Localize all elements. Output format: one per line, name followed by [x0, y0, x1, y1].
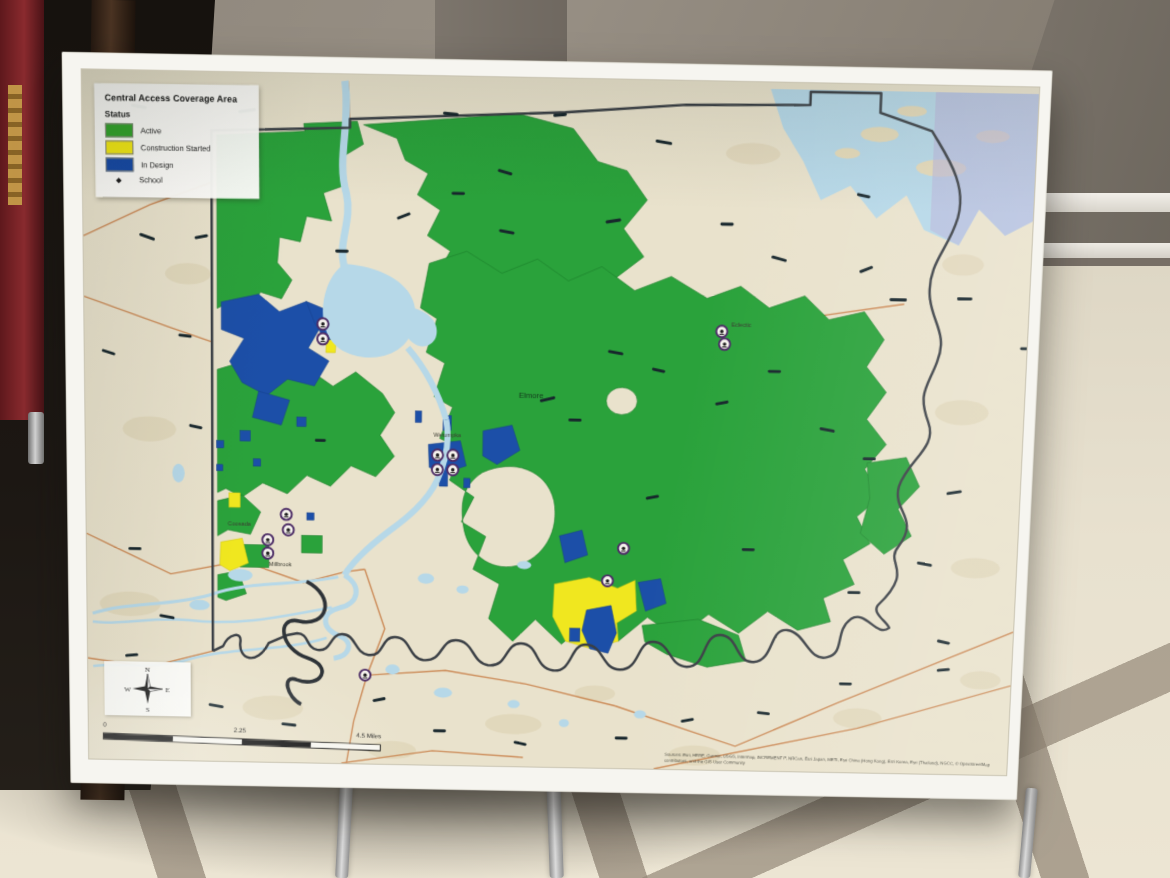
- label-wetumpka: Wetumpka: [434, 432, 462, 439]
- coverage-map: Elmore Wetumpka Coosada Millbrook Eclect…: [81, 68, 1041, 776]
- compass-rose: N S E W: [104, 661, 191, 717]
- compass-e: E: [166, 686, 170, 694]
- school-icon: [447, 464, 458, 475]
- school-icon: [262, 547, 273, 558]
- flag: [0, 0, 44, 420]
- school-icon: [283, 524, 294, 535]
- label-coosada: Coosada: [228, 522, 252, 528]
- compass-w: W: [124, 685, 131, 693]
- legend-title: Central Access Coverage Area: [105, 92, 249, 104]
- design-swatch: [106, 158, 134, 172]
- school-icon: [262, 534, 273, 545]
- school-icon: [618, 543, 629, 554]
- outside-area-tint: [930, 92, 1039, 247]
- school-icon: [432, 449, 443, 460]
- compass-s: S: [146, 706, 150, 714]
- compass-star: N S E W: [108, 664, 187, 713]
- school-icon: [602, 575, 613, 586]
- map-poster-board: Elmore Wetumpka Coosada Millbrook Eclect…: [62, 52, 1053, 800]
- label-eclectic: Eclectic: [731, 322, 751, 329]
- school-icon: [317, 318, 328, 330]
- map-legend: Central Access Coverage Area Status Acti…: [94, 83, 259, 199]
- legend-item-active: Active: [105, 123, 249, 139]
- school-icon: [716, 326, 728, 338]
- compass-n: N: [145, 666, 150, 674]
- scale-label-0: 0: [103, 722, 107, 729]
- flag-gold-fringe: [8, 85, 22, 205]
- school-icon: [360, 670, 371, 681]
- flag-pole-base: [28, 412, 44, 464]
- school-icon: [317, 333, 328, 345]
- construction-swatch: [105, 140, 133, 154]
- active-swatch: [105, 123, 133, 137]
- legend-status-heading: Status: [105, 109, 249, 120]
- scale-label-mid: 2.25: [234, 727, 246, 734]
- school-icon: [719, 338, 731, 350]
- label-millbrook: Millbrook: [269, 561, 292, 567]
- legend-item-construction: Construction Started: [105, 140, 248, 156]
- school-icon: ◆: [106, 175, 132, 184]
- school-icon: [281, 509, 292, 520]
- label-elmore: Elmore: [519, 391, 544, 401]
- legend-item-school: ◆ School: [106, 175, 249, 186]
- legend-item-design: In Design: [106, 158, 249, 174]
- school-icon: [432, 464, 443, 475]
- scale-label-max: 4.5 Miles: [356, 732, 381, 740]
- school-icon: [447, 450, 458, 461]
